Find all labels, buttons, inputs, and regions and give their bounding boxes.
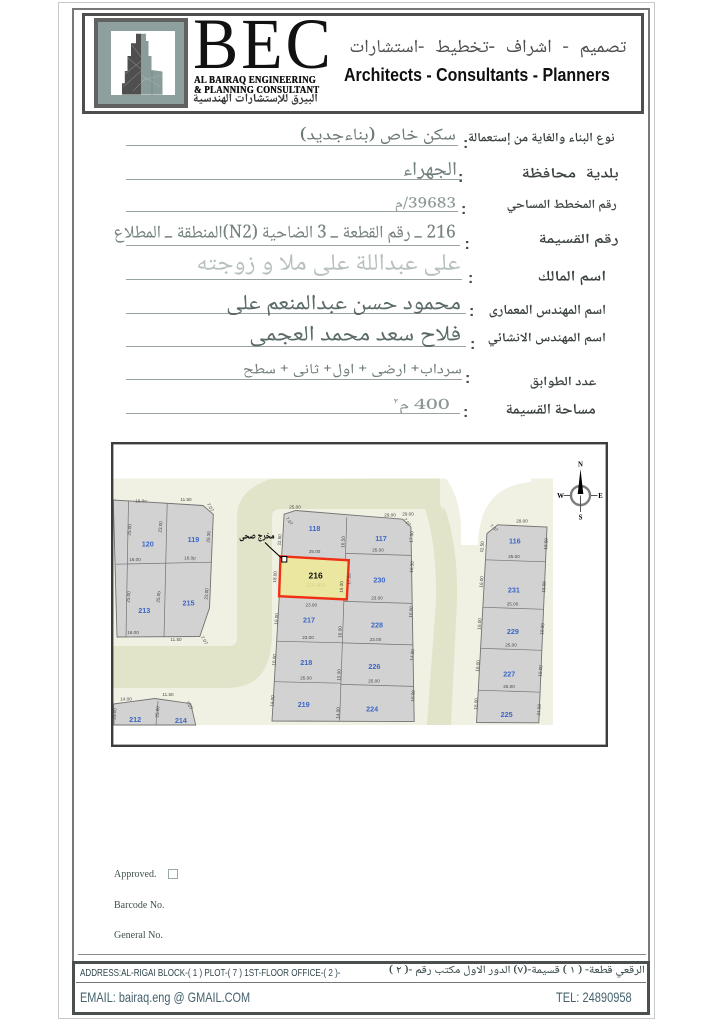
- svg-text:16.00: 16.00: [539, 622, 545, 634]
- svg-text:215: 215: [183, 599, 195, 608]
- svg-text:25.00: 25.00: [289, 504, 301, 509]
- svg-text:23.00: 23.00: [371, 596, 383, 601]
- svg-text:226: 226: [368, 662, 380, 671]
- svg-text:25.0b: 25.0b: [156, 590, 162, 602]
- svg-text:S: S: [579, 515, 583, 522]
- svg-text:17.50: 17.50: [409, 530, 415, 542]
- svg-text:25.00: 25.00: [127, 523, 133, 535]
- svg-text:14.00: 14.00: [120, 696, 132, 701]
- svg-text:16.50: 16.50: [409, 560, 415, 572]
- svg-text:18.00: 18.00: [272, 570, 278, 582]
- svg-text:16.00: 16.00: [270, 694, 276, 706]
- svg-text:25.00: 25.00: [309, 549, 321, 554]
- svg-text:227: 227: [503, 669, 515, 678]
- svg-text:17.0o: 17.0o: [346, 573, 352, 585]
- svg-text:16.00: 16.00: [410, 689, 416, 701]
- svg-text:16.00: 16.00: [274, 612, 280, 624]
- svg-text:213: 213: [138, 606, 150, 615]
- svg-text:16.00: 16.00: [541, 580, 547, 592]
- svg-text:23.00: 23.00: [306, 603, 318, 608]
- svg-text:214: 214: [175, 716, 187, 725]
- svg-text:29.00: 29.00: [516, 519, 528, 524]
- svg-text:25.00: 25.00: [507, 601, 519, 606]
- svg-text:25.00: 25.00: [505, 642, 517, 647]
- svg-text:16.50: 16.50: [543, 537, 549, 549]
- svg-text:16.00: 16.00: [127, 630, 139, 635]
- svg-text:16.50: 16.50: [340, 536, 346, 548]
- svg-text:25.00: 25.00: [300, 676, 312, 681]
- svg-text:216: 216: [309, 571, 323, 581]
- svg-text:14.00: 14.00: [335, 707, 341, 719]
- svg-text:11.50: 11.50: [170, 637, 182, 642]
- svg-text:11.50: 11.50: [180, 497, 192, 502]
- svg-text:23.00: 23.00: [370, 637, 382, 642]
- svg-text:25.00: 25.00: [155, 705, 161, 717]
- svg-text:29.00: 29.00: [384, 513, 396, 518]
- svg-text:230: 230: [373, 576, 385, 585]
- svg-text:219: 219: [298, 700, 310, 709]
- svg-text:120: 120: [142, 539, 154, 548]
- svg-text:225: 225: [501, 710, 513, 719]
- svg-text:16.00: 16.00: [337, 626, 343, 638]
- svg-text:16.00: 16.00: [473, 697, 479, 709]
- svg-text:212: 212: [129, 715, 141, 724]
- svg-text:24.03: 24.03: [536, 703, 542, 715]
- svg-text:116: 116: [509, 537, 521, 546]
- svg-text:16.00: 16.00: [475, 659, 481, 671]
- svg-text:217: 217: [303, 615, 315, 624]
- svg-text:231: 231: [508, 585, 520, 594]
- svg-text:228: 228: [371, 620, 383, 629]
- svg-text:23.00: 23.00: [158, 520, 164, 532]
- svg-text:26.36: 26.36: [206, 530, 212, 542]
- svg-text:25.00: 25.00: [126, 590, 132, 602]
- svg-text:11.50: 11.50: [277, 534, 283, 546]
- svg-text:14.00: 14.00: [409, 648, 415, 660]
- svg-text:E: E: [598, 493, 603, 500]
- svg-text:15.00: 15.00: [336, 669, 342, 681]
- svg-text:N: N: [578, 462, 583, 469]
- svg-text:16.00: 16.00: [479, 575, 485, 587]
- svg-text:29.00: 29.00: [402, 512, 414, 517]
- svg-text:11.50: 11.50: [162, 692, 174, 697]
- svg-text:25.00: 25.00: [503, 684, 515, 689]
- svg-text:16.00: 16.00: [408, 605, 414, 617]
- svg-text:224: 224: [366, 704, 378, 713]
- svg-text:25.00: 25.00: [368, 679, 380, 684]
- svg-text:216 400: 216 400: [307, 583, 325, 589]
- svg-text:117: 117: [375, 534, 387, 543]
- svg-text:23.00: 23.00: [302, 635, 314, 640]
- svg-text:25.00: 25.00: [372, 548, 384, 553]
- svg-text:218: 218: [300, 658, 312, 667]
- svg-text:229: 229: [507, 627, 519, 636]
- svg-text:16.00: 16.00: [477, 617, 483, 629]
- svg-text:16.0p: 16.0p: [184, 556, 196, 561]
- svg-text:23.00: 23.00: [204, 587, 210, 599]
- svg-text:W: W: [557, 493, 564, 500]
- svg-text:16.00: 16.00: [271, 653, 277, 665]
- svg-text:119: 119: [188, 535, 200, 544]
- svg-text:16.00: 16.00: [538, 664, 544, 676]
- svg-text:25.00: 25.00: [508, 554, 520, 559]
- svg-text:118: 118: [309, 524, 321, 533]
- svg-text:16.00: 16.00: [339, 581, 345, 593]
- svg-text:11.50: 11.50: [479, 541, 485, 553]
- svg-text:16.0o: 16.0o: [135, 499, 147, 504]
- svg-text:16.00: 16.00: [129, 557, 141, 562]
